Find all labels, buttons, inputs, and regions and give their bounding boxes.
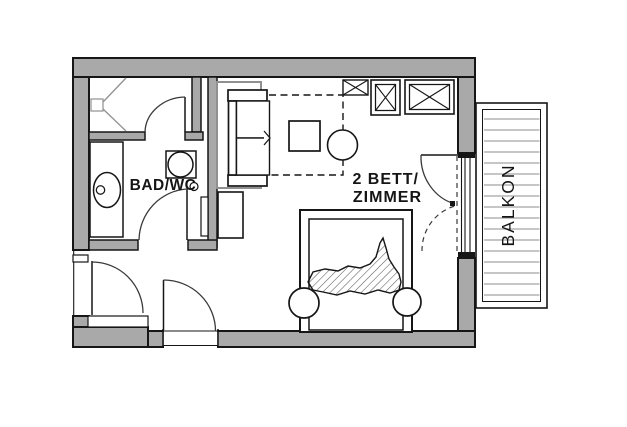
labels: BAD/WC 2 BETT/ ZIMMER: [130, 171, 422, 206]
bathroom-door: [139, 189, 187, 240]
wall-niche: [88, 316, 148, 327]
bed: [289, 210, 421, 332]
furniture: [217, 80, 454, 332]
bathroom-fixtures: [90, 78, 208, 237]
wardrobe-small: [343, 80, 368, 95]
wall-right-upper: [458, 77, 475, 153]
bedroom-label-line1: 2 BETT/: [352, 171, 419, 188]
wardrobe-wide: [405, 80, 454, 114]
bedroom-label-line2: ZIMMER: [353, 189, 422, 206]
wardrobe-mid: [371, 80, 400, 115]
sofa-backrest: [229, 101, 237, 175]
entrance-door: [164, 280, 216, 331]
wall-shaft-left: [192, 77, 201, 132]
floor-plan: BALKON BAD/WC 2 BETT/ ZIMMER: [0, 0, 627, 427]
wall-right-lower: [458, 258, 475, 331]
wall-bath-south-east: [188, 240, 217, 250]
wall-bath-partition: [208, 77, 217, 247]
round-table: [328, 130, 358, 160]
window-glass: [458, 158, 475, 252]
side-table: [289, 121, 320, 151]
bed-pillow: [289, 288, 319, 318]
wall-shower-west: [89, 132, 145, 140]
wall-left: [73, 77, 89, 250]
wall-shower-east: [185, 132, 203, 140]
wall-bath-south-west: [89, 240, 138, 250]
hall-side-door: [92, 261, 143, 315]
dresser: [218, 192, 243, 238]
shower-icon: [91, 78, 126, 131]
sofa-armrest: [228, 175, 267, 186]
shower-door: [145, 97, 185, 132]
door-handle: [450, 201, 455, 206]
wall-bottom-left: [73, 327, 148, 347]
balcony-label: BALKON: [498, 164, 518, 247]
balcony: BALKON: [476, 103, 547, 308]
sofa: [217, 82, 270, 188]
vanity-sink-icon: [90, 142, 123, 237]
wall-top: [73, 58, 475, 77]
window-cap-top: [458, 153, 475, 158]
bathroom-label: BAD/WC: [130, 177, 197, 194]
bath-shelf: [201, 197, 208, 236]
sofa-armrest: [228, 90, 267, 101]
floor-plan-drawing: BALKON BAD/WC 2 BETT/ ZIMMER: [0, 0, 627, 427]
window-cap-bottom: [458, 252, 475, 257]
balcony-door: [421, 155, 458, 252]
side-door-sill: [73, 255, 88, 262]
bed-pillow: [393, 288, 421, 316]
